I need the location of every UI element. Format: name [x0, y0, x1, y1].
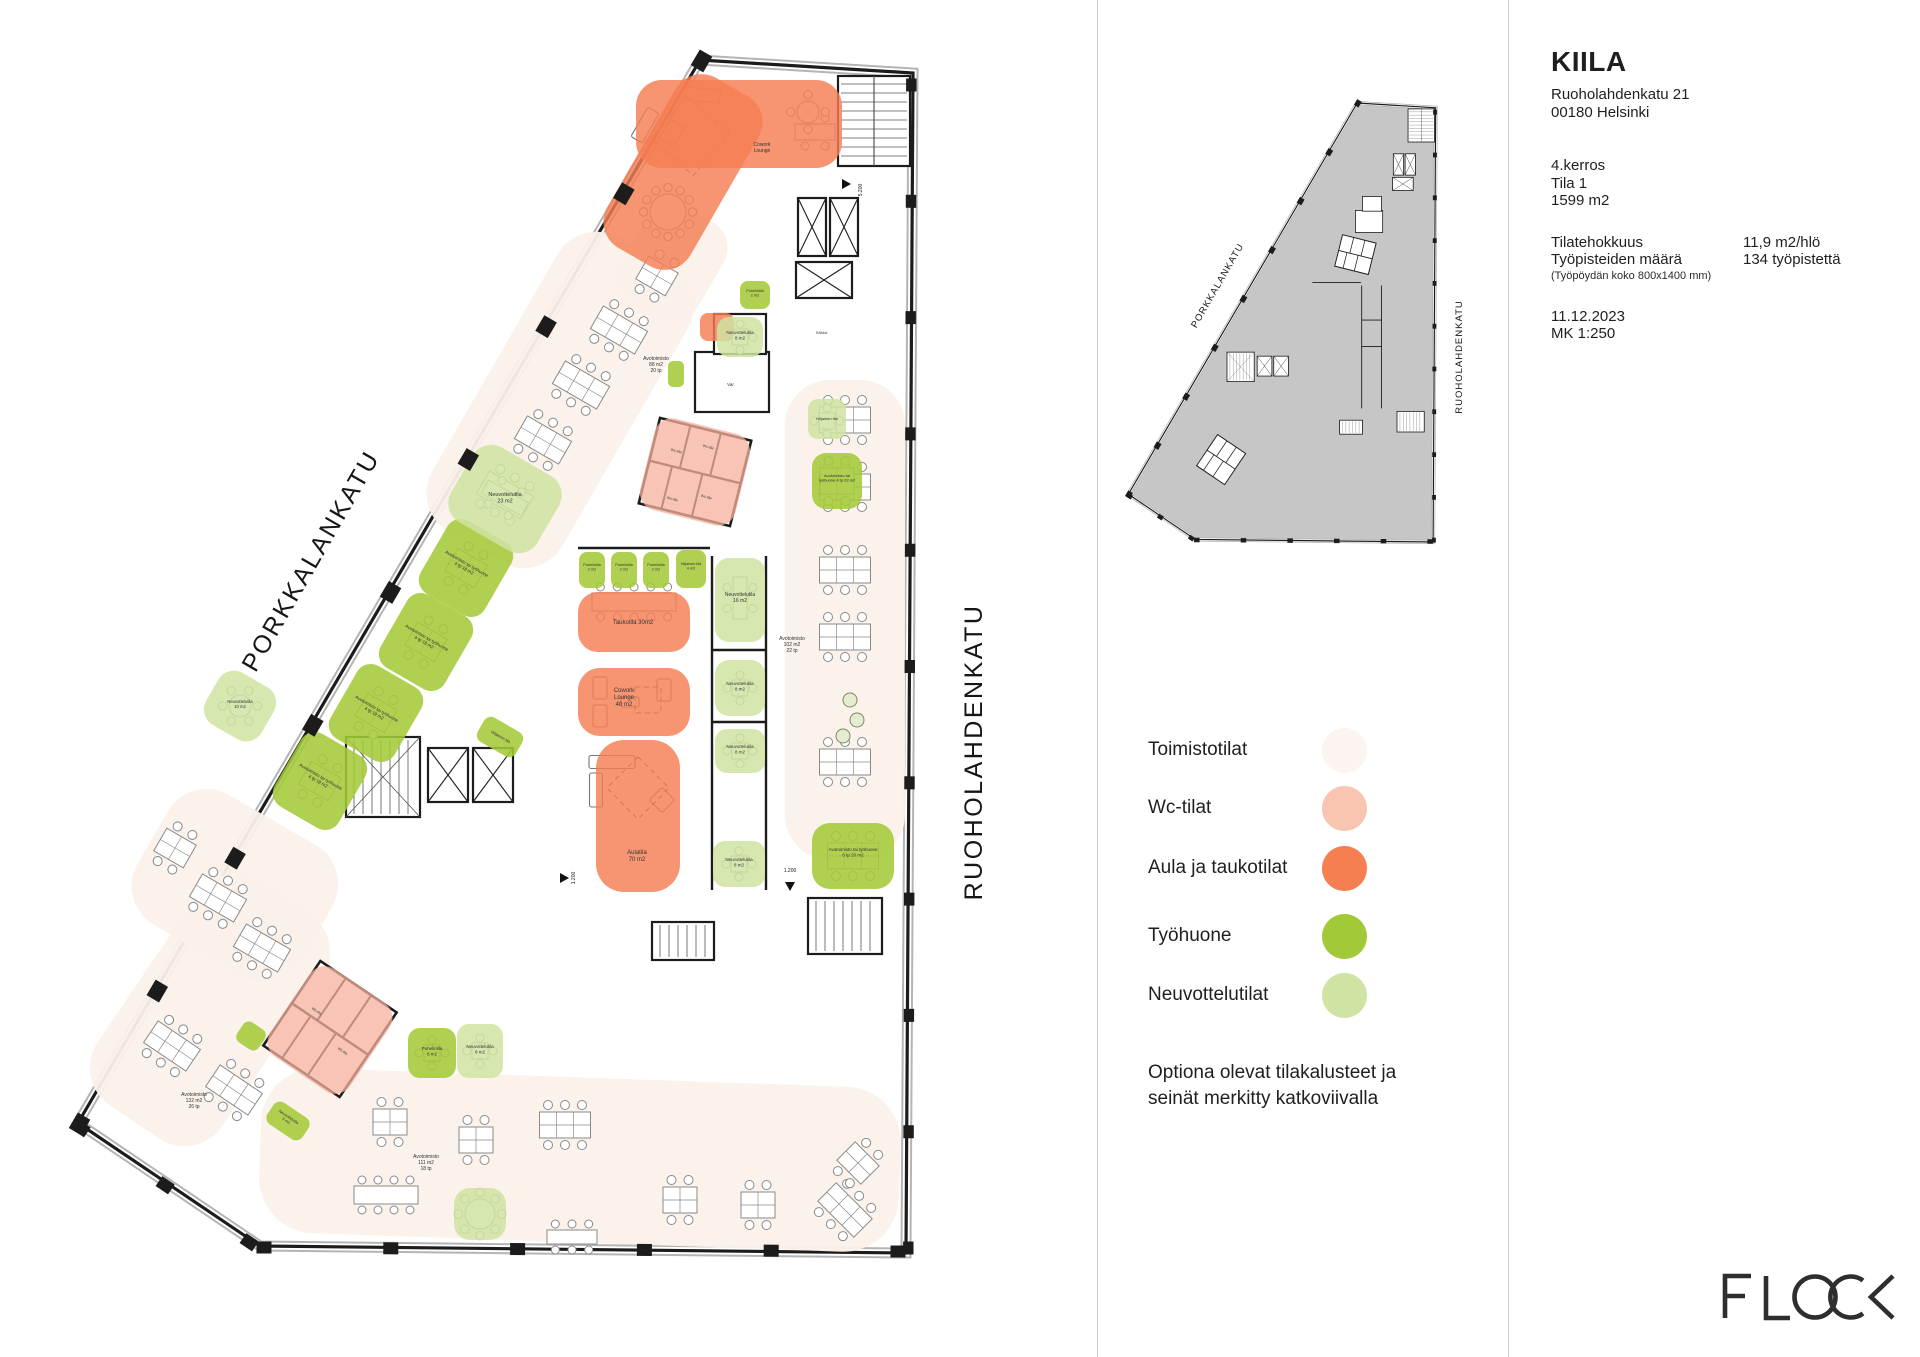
legend-label: Työhuone	[1148, 925, 1322, 947]
legend-item-1: Wc-tilat	[1148, 785, 1367, 831]
legend-note: Optiona olevat tilakalusteet ja seinät m…	[1148, 1060, 1448, 1112]
svg-text:5.200: 5.200	[858, 184, 864, 197]
legend-item-4: Neuvottelutilat	[1148, 972, 1367, 1018]
project-title: KIILA	[1551, 46, 1881, 78]
column-divider-left	[1097, 0, 1098, 1357]
legend-label: Aula ja taukotilat	[1148, 857, 1322, 879]
legend-item-2: Aula ja taukotilat	[1148, 845, 1367, 891]
legend-item-0: Toimistotilat	[1148, 727, 1367, 773]
column-divider-right	[1508, 0, 1509, 1357]
svg-text:1.200: 1.200	[571, 872, 577, 885]
svg-text:CoworkLounge: CoworkLounge	[754, 142, 771, 154]
legend-color-dot	[1322, 914, 1367, 959]
svg-text:Var.: Var.	[727, 382, 735, 387]
flock-logo	[1720, 1272, 1898, 1322]
svg-text:Sähkö.: Sähkö.	[816, 330, 828, 335]
svg-text:Hiljainen tila: Hiljainen tila	[816, 416, 838, 421]
desk-size-note: (Työpöydän koko 800x1400 mm)	[1551, 269, 1881, 284]
logo-letter-f	[1725, 1276, 1751, 1318]
plan-scale: MK 1:250	[1551, 325, 1881, 343]
svg-text:Taukotila 30m2: Taukotila 30m2	[613, 620, 654, 626]
floor-label: 4.kerros	[1551, 157, 1881, 175]
street-label: RUOHOLAHDENKATU	[960, 604, 988, 901]
legend-note-line2: seinät merkitty katkoviivalla	[1148, 1086, 1448, 1112]
workstations-label: Työpisteiden määrä	[1551, 251, 1743, 269]
svg-text:CoworkLounge40 m2: CoworkLounge40 m2	[614, 688, 635, 708]
legend-label: Wc-tilat	[1148, 797, 1322, 819]
legend-label: Toimistotilat	[1148, 739, 1322, 761]
plan-date: 11.12.2023	[1551, 308, 1881, 326]
address-line1: Ruoholahdenkatu 21	[1551, 86, 1881, 104]
legend-color-dot	[1322, 973, 1367, 1018]
logo-chevron-k-icon	[1871, 1276, 1893, 1318]
efficiency-label: Tilatehokkuus	[1551, 234, 1743, 252]
efficiency-value: 11,9 m2/hlö	[1743, 234, 1820, 252]
legend-label: Neuvottelutilat	[1148, 984, 1322, 1006]
address-line2: 00180 Helsinki	[1551, 104, 1881, 122]
title-block: KIILA Ruoholahdenkatu 21 00180 Helsinki …	[1551, 46, 1881, 343]
workstations-value: 134 työpistettä	[1743, 251, 1841, 269]
legend-color-dot	[1322, 728, 1367, 773]
svg-text:Aulatila70 m2: Aulatila70 m2	[627, 850, 647, 863]
legend: ToimistotilatWc-tilatAula ja taukotilatT…	[1148, 0, 1478, 1357]
legend-item-3: Työhuone	[1148, 913, 1367, 959]
floorplan-page: { "title_block": { "title": "KIILA", "ad…	[0, 0, 1920, 1357]
legend-color-dot	[1322, 846, 1367, 891]
area-label: 1599 m2	[1551, 192, 1881, 210]
logo-letter-l	[1766, 1276, 1790, 1318]
legend-color-dot	[1322, 786, 1367, 831]
legend-note-line1: Optiona olevat tilakalusteet ja	[1148, 1060, 1448, 1086]
svg-text:1.200: 1.200	[784, 868, 797, 874]
space-label: Tila 1	[1551, 175, 1881, 193]
